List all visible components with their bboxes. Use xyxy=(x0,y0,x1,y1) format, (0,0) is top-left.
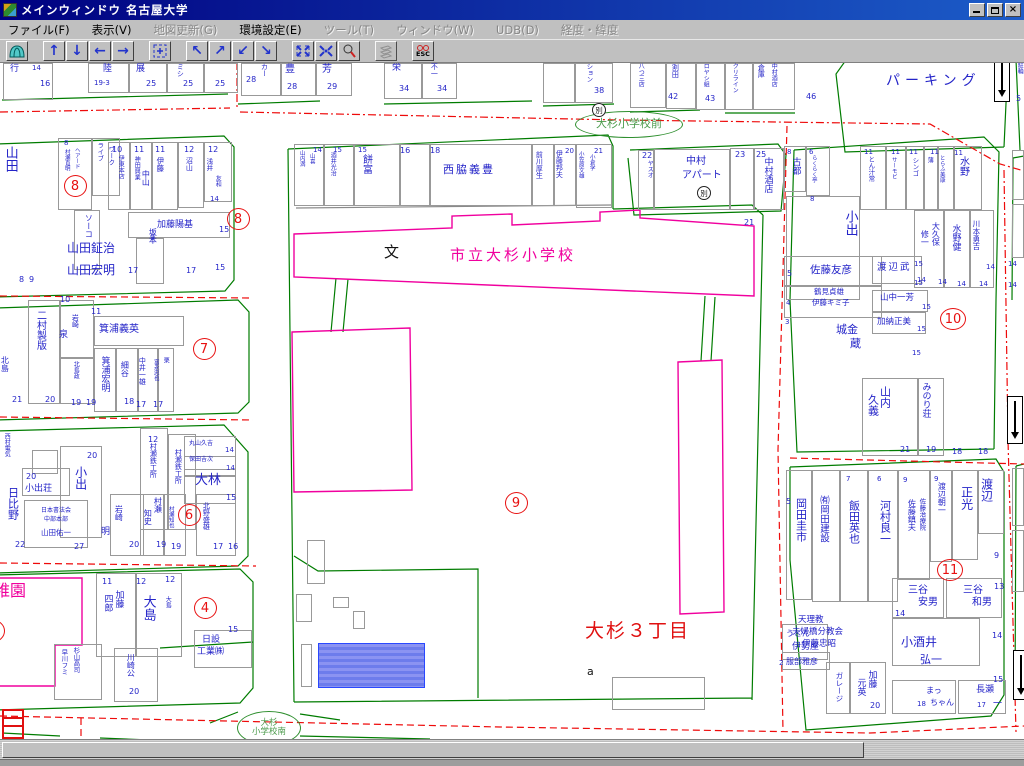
map-label: 元英 xyxy=(855,678,864,696)
layers-icon xyxy=(378,43,394,59)
map-label: 43 xyxy=(705,95,715,103)
map-label: 14 xyxy=(1008,261,1017,268)
map-label: 9 xyxy=(903,477,907,484)
map-label: 14 xyxy=(225,447,234,454)
map-label: 加藤 xyxy=(113,590,122,608)
map-label: 蔵 xyxy=(850,338,861,350)
map-label: 14 xyxy=(895,610,905,618)
map-label: 友和 xyxy=(214,175,220,187)
expand-arrows-icon xyxy=(294,43,312,59)
toolbar-button-pan-up[interactable]: ↑ xyxy=(43,41,65,61)
map-label: 19 xyxy=(71,399,81,407)
map-label: a xyxy=(587,666,594,678)
map-label: 鶴見貞雄 xyxy=(814,288,844,296)
toolbar-button-overview[interactable] xyxy=(6,41,28,61)
map-label: 栗 xyxy=(162,357,168,363)
map-label: 伊勢屋 xyxy=(792,643,819,652)
map-label: 北島 xyxy=(0,356,8,372)
map-label: 11 xyxy=(155,146,165,154)
block-number-circle: 10 xyxy=(940,308,966,330)
map-label: 25 xyxy=(183,80,193,88)
parcel-box xyxy=(333,597,349,608)
toolbar-button-pan-sw[interactable]: ↙ xyxy=(232,41,254,61)
map-label: アパート xyxy=(682,171,722,182)
map-label: 伊東本店 xyxy=(117,155,123,179)
map-label: 17 xyxy=(977,702,986,709)
parcel-box xyxy=(129,63,167,93)
map-label: 18 xyxy=(978,448,988,456)
map-label: 14 xyxy=(210,196,219,203)
map-label: ソーコ xyxy=(84,214,92,238)
parcel-box xyxy=(575,63,613,103)
right-arrow-icon: → xyxy=(117,44,129,58)
map-label: 渡辺武 xyxy=(877,263,912,273)
map-label: ヘアード xyxy=(73,147,79,169)
map-label: 11 xyxy=(891,149,900,156)
map-label: 9 xyxy=(994,552,999,560)
map-label: 芳 xyxy=(322,65,332,76)
map-label: 20 xyxy=(26,473,36,481)
map-label: 20 xyxy=(129,541,139,549)
horizontal-scrollbar[interactable] xyxy=(0,739,1024,759)
map-label: 38 xyxy=(594,87,604,95)
map-label: 21 xyxy=(594,148,603,155)
map-label: 18 xyxy=(124,398,134,406)
toolbar-button-esc[interactable]: ESC xyxy=(412,41,434,61)
map-label: クリライン xyxy=(731,63,737,93)
map-label: シンゴ xyxy=(911,157,918,177)
map-label: 薄 xyxy=(926,157,932,163)
map-label: 15 xyxy=(219,226,229,234)
map-label: 城金 xyxy=(836,324,858,336)
map-label: ミシ xyxy=(176,63,183,77)
map-label: 山田 xyxy=(3,146,17,172)
map-label: 中部本部 xyxy=(44,517,68,523)
toolbar-button-pan-down[interactable]: ↓ xyxy=(66,41,88,61)
map-canvas[interactable]: 行1416陸19-3展25ミシ2525カー28豊28芳29栄34不一34ション3… xyxy=(0,63,1024,739)
overview-icon xyxy=(8,43,26,59)
map-label: 小出 xyxy=(843,210,857,236)
map-label: サーモビ xyxy=(890,157,896,179)
map-label: 17 xyxy=(136,401,146,409)
menu-item-window: ウィンドウ(W) xyxy=(396,22,474,38)
map-label: 34 xyxy=(399,85,409,93)
map-label: 20 xyxy=(565,148,574,155)
map-label: 市立大杉小学校 xyxy=(450,248,576,264)
parcel-box xyxy=(296,594,312,622)
map-label: 北野盛雄 xyxy=(202,502,209,530)
map-label: 割田 xyxy=(671,64,678,78)
sw-arrow-icon: ↙ xyxy=(237,44,249,58)
map-label: 10 xyxy=(60,296,70,304)
menu-bar: ファイル(F)表示(V)地図更新(G)環境設定(E)ツール(T)ウィンドウ(W)… xyxy=(0,20,1024,40)
map-label: 村瀬 xyxy=(153,497,161,513)
map-label: 13 xyxy=(994,583,1004,591)
block-number-circle: 8 xyxy=(64,175,87,197)
map-label: みのり荘 xyxy=(920,382,929,418)
map-label: 12 xyxy=(208,146,218,154)
toolbar-button-pan-se[interactable]: ↘ xyxy=(255,41,277,61)
map-label: 明 xyxy=(101,528,110,537)
map-label: 小笠原文雄 xyxy=(577,151,583,179)
toolbar-button-zoom-in-wide[interactable] xyxy=(315,41,337,61)
map-label: 和男 xyxy=(972,598,992,609)
map-label: 山田鉦治 xyxy=(67,242,115,255)
map-label: 服部雅彦 xyxy=(786,658,818,666)
map-label: パーキング xyxy=(886,74,981,89)
scrollbar-thumb[interactable] xyxy=(2,742,864,758)
parcel-box xyxy=(167,63,204,93)
map-label: 栄 xyxy=(392,64,401,73)
map-label: 日設 xyxy=(202,636,220,645)
map-label: 展 xyxy=(136,65,145,74)
map-label: 20 xyxy=(87,452,97,460)
map-label: 10 xyxy=(112,146,122,154)
map-label: 細谷 xyxy=(120,361,128,377)
map-label: 川崎公 xyxy=(126,653,134,677)
map-label: 佐藤治療院 xyxy=(918,498,925,531)
map-label: 12 xyxy=(165,576,175,584)
map-label: 大島 xyxy=(141,595,155,621)
map-label: 渡辺朝一 xyxy=(937,482,945,514)
map-label: 14 xyxy=(32,65,41,72)
menu-item-udb: UDB(D) xyxy=(496,23,539,37)
map-label: 29 xyxy=(327,83,337,91)
block-number-circle: 6 xyxy=(178,504,201,526)
school-pool xyxy=(318,643,425,688)
parcel-box xyxy=(32,450,58,474)
map-label: ション xyxy=(585,63,592,83)
map-label: 保田吉次 xyxy=(189,457,213,463)
oneway-arrow-icon xyxy=(994,63,1010,102)
map-label: 2 xyxy=(779,660,783,667)
map-label: 沼山 xyxy=(185,157,192,171)
parcel-box xyxy=(353,611,365,629)
map-label: 14 xyxy=(992,632,1002,640)
close-button[interactable]: × xyxy=(1005,3,1021,17)
block-number-circle: 11 xyxy=(937,559,963,581)
map-label: 19-3 xyxy=(94,80,110,87)
map-label: 浅井 xyxy=(205,158,212,171)
map-label: 27 xyxy=(74,543,84,551)
main-window: メインウィンドウ 名古屋大学 × ファイル(F)表示(V)地図更新(G)環境設定… xyxy=(0,0,1024,766)
parcel-box xyxy=(630,63,666,108)
map-label: 18 xyxy=(952,448,962,456)
map-label: 16 xyxy=(400,147,410,155)
map-label: らくらく亭 xyxy=(810,155,816,183)
esc-icon: ESC xyxy=(416,44,430,58)
map-label: 富永忠也 xyxy=(152,359,158,381)
map-label: 小倉学 xyxy=(588,154,594,171)
map-label: 中山 xyxy=(141,170,149,186)
menu-item-map-update: 地図更新(G) xyxy=(153,22,217,38)
map-label: 小出荘 xyxy=(25,485,52,494)
map-label: 豊 xyxy=(285,65,295,76)
map-label: 山田佑一 xyxy=(41,529,71,537)
map-label: 8 xyxy=(64,140,68,147)
map-label: 古都 xyxy=(790,157,799,175)
menu-item-env-settings[interactable]: 環境設定(E) xyxy=(239,22,301,38)
app-icon xyxy=(3,3,17,17)
map-label: 19 xyxy=(171,543,181,551)
map-label: 稚園 xyxy=(0,583,26,600)
map-label: 15 xyxy=(993,676,1003,684)
rail-crossing-symbol xyxy=(2,709,24,739)
map-label: ガレージ xyxy=(835,672,843,702)
map-label: 大林 xyxy=(195,474,221,488)
map-label: 岩崎 xyxy=(71,314,78,328)
menu-item-tools: ツール(T) xyxy=(324,22,375,38)
map-label: 14 xyxy=(938,279,947,286)
minimize-button[interactable] xyxy=(969,3,985,17)
map-label: 伊藤邦夫 xyxy=(555,150,562,178)
map-label: 15 xyxy=(215,264,225,272)
title-bar[interactable]: メインウィンドウ 名古屋大学 × xyxy=(0,0,1024,20)
map-label: 17 xyxy=(213,543,223,551)
map-label: 川本勇吉 xyxy=(972,220,980,250)
map-label: 長瀬 xyxy=(976,686,994,695)
map-label: 小出 xyxy=(74,466,87,490)
map-label: 中井一雄 xyxy=(138,357,145,385)
menu-item-lon-lat: 経度・緯度 xyxy=(561,22,619,38)
map-label: 大杉３丁目 xyxy=(585,622,690,642)
map-label: 21 xyxy=(900,446,910,454)
map-label: 酒井光治 xyxy=(329,152,335,176)
annotation-badge: 別 xyxy=(697,186,711,200)
map-label: 15 xyxy=(917,326,926,333)
map-label: 19 xyxy=(156,541,166,549)
map-label: 加藤 xyxy=(866,670,875,688)
map-label: 西脇義豊 xyxy=(443,164,495,176)
map-label: 天理教 xyxy=(798,616,824,625)
map-label: 中村酒店 xyxy=(770,63,776,87)
bus-stop-label: 大杉小学校前 xyxy=(575,111,683,138)
parcel-box xyxy=(1012,204,1024,258)
map-label: 20 xyxy=(129,688,139,696)
parcel-box xyxy=(952,470,978,560)
map-label: 三谷 xyxy=(908,586,928,597)
map-label: 知史 xyxy=(143,509,151,525)
map-label: 三谷 xyxy=(963,586,983,597)
parcel-box xyxy=(1012,468,1024,526)
parcel-box xyxy=(543,63,575,103)
map-label: 7 xyxy=(846,476,850,483)
map-label: 15 xyxy=(914,280,923,287)
map-label: まっ xyxy=(926,687,942,695)
map-label: 9 xyxy=(29,276,34,284)
map-label: 15 xyxy=(922,304,931,311)
map-label: 杉山高司 xyxy=(72,647,79,673)
map-label: 大島 xyxy=(164,596,170,608)
map-label: 14 xyxy=(979,281,988,288)
map-label: 安男 xyxy=(918,598,938,609)
map-label: 4 xyxy=(786,300,790,307)
map-label: 箕浦宏明 xyxy=(99,356,108,392)
map-label: 6 xyxy=(877,476,881,483)
map-label: 二村製版 xyxy=(34,310,45,350)
map-label: 15 xyxy=(912,350,921,357)
up-arrow-icon: ↑ xyxy=(48,44,60,58)
map-label: 5 xyxy=(787,270,792,278)
toolbar-button-magnifier[interactable] xyxy=(338,41,360,61)
map-label: 餅富 xyxy=(360,154,371,174)
map-label: 5 xyxy=(1016,95,1021,103)
map-label: ヤスオ xyxy=(646,160,652,178)
map-label: 20 xyxy=(45,396,55,404)
map-label: 駐輪 xyxy=(1016,63,1022,74)
map-label: 11 xyxy=(91,308,101,316)
nw-arrow-icon: ↖ xyxy=(191,44,203,58)
map-label: 水野健 xyxy=(950,224,959,251)
shrink-arrows-icon xyxy=(317,43,335,59)
map-label: 飯田英也 xyxy=(848,500,860,544)
map-label: 坂本 xyxy=(148,228,156,244)
map-label: 河村良一 xyxy=(879,500,891,544)
map-label: 25 xyxy=(146,80,156,88)
map-label: 久義 xyxy=(867,394,879,416)
left-arrow-icon: ← xyxy=(94,44,106,58)
map-label: 17 xyxy=(186,267,196,275)
map-label: 行 xyxy=(10,65,19,74)
magnifier-icon xyxy=(341,43,357,59)
map-label: 19 xyxy=(86,399,96,407)
map-label: 14 xyxy=(1008,282,1017,289)
map-label: 21 xyxy=(744,219,754,227)
bus-stop-label: 大杉小学校南 xyxy=(237,711,301,739)
parcel-box xyxy=(307,540,325,584)
map-label: 28 xyxy=(287,83,297,91)
toolbar-button-center[interactable] xyxy=(149,41,171,61)
map-label: 16 xyxy=(228,543,238,551)
menu-item-view[interactable]: 表示(V) xyxy=(92,22,132,38)
map-label: 村瀬鉄工所 xyxy=(149,443,156,478)
map-label: 箕浦義英 xyxy=(99,325,139,336)
map-label: 中村酒店 xyxy=(762,157,771,193)
parcel-box xyxy=(725,63,753,110)
map-label: ロヤシ組 xyxy=(702,63,708,87)
map-label: 14 xyxy=(957,281,966,288)
parcel-box xyxy=(892,680,956,714)
map-label: 村瀬知也 xyxy=(167,506,173,528)
toolbar-button-layers xyxy=(375,41,397,61)
map-label: 山内 xyxy=(879,386,891,408)
map-label: 岩崎 xyxy=(114,505,122,521)
restore-button[interactable] xyxy=(987,3,1003,17)
map-label: 加藤陽基 xyxy=(157,221,193,230)
map-label: 前川厚生 xyxy=(535,151,542,179)
parcel-box xyxy=(1012,150,1024,200)
map-label: 四郎 xyxy=(102,594,111,612)
map-label: 23 xyxy=(735,151,745,159)
menu-item-file[interactable]: ファイル(F) xyxy=(8,22,70,38)
map-label: 11 xyxy=(102,578,112,586)
map-label: 18 xyxy=(430,147,440,155)
map-label: 34 xyxy=(437,85,447,93)
map-label: 八つ三店 xyxy=(637,63,643,87)
map-label: 山中一芳 xyxy=(880,294,914,303)
parcel-box xyxy=(384,63,422,99)
map-label: 15 xyxy=(228,626,238,634)
map-label: 28 xyxy=(246,76,256,84)
map-label: 水野 xyxy=(957,156,968,176)
map-label: 8 xyxy=(810,196,814,203)
window-bottom-edge xyxy=(0,759,1024,766)
map-label: 18 xyxy=(917,701,926,708)
map-label: 佐藤鎮夫 xyxy=(907,499,915,531)
map-label: 15 xyxy=(914,261,923,268)
oneway-arrow-icon xyxy=(1013,650,1024,700)
center-icon xyxy=(152,43,168,59)
map-label: 17 xyxy=(153,401,163,409)
block-number-circle: 4 xyxy=(194,597,217,619)
map-label: 伊藤キミ子 xyxy=(812,299,850,307)
map-label: 46 xyxy=(806,93,816,101)
map-label: 泉 xyxy=(59,331,68,340)
map-label: 3 xyxy=(785,319,789,326)
map-label: 17 xyxy=(128,267,138,275)
map-label: 22 xyxy=(15,541,25,549)
map-label: 14 xyxy=(313,147,322,154)
map-label: 15 xyxy=(358,147,367,154)
map-label: 村瀬直明 xyxy=(63,149,69,171)
toolbar-button-pan-ne[interactable]: ↗ xyxy=(209,41,231,61)
se-arrow-icon: ↘ xyxy=(260,44,272,58)
map-label: 21 xyxy=(12,396,22,404)
toolbar-button-zoom-out-wide[interactable] xyxy=(292,41,314,61)
down-arrow-icon: ↓ xyxy=(71,44,83,58)
map-label: 正光 xyxy=(960,486,973,510)
map-label: 19 xyxy=(926,446,936,454)
map-label: 日本書法会 xyxy=(41,508,71,514)
map-label: ちゃん xyxy=(930,699,954,707)
map-label: ㈲岡田建設 xyxy=(818,495,828,543)
map-label: 北島政 xyxy=(72,361,78,379)
map-label: 西村電気 xyxy=(3,433,9,457)
toolbar-button-pan-right[interactable]: → xyxy=(112,41,134,61)
map-label: 5 xyxy=(786,498,791,506)
map-label: 不一 xyxy=(430,63,437,77)
map-label: 15 xyxy=(333,147,342,154)
annotation-badge: 別 xyxy=(592,103,606,117)
map-label: 文 xyxy=(384,245,399,261)
map-label: 8 xyxy=(19,276,24,284)
map-label: 15 xyxy=(226,494,236,502)
map-label: 14 xyxy=(986,264,995,271)
toolbar-button-pan-nw[interactable]: ↖ xyxy=(186,41,208,61)
map-label: 16 xyxy=(40,80,50,88)
parcel-box xyxy=(60,300,94,358)
ne-arrow-icon: ↗ xyxy=(214,44,226,58)
block-number-circle: 9 xyxy=(505,492,528,514)
toolbar-button-pan-left[interactable]: ← xyxy=(89,41,111,61)
map-label: 早川フミ xyxy=(60,649,67,675)
map-label: 山内満 xyxy=(298,150,304,167)
map-label: 小酒井 xyxy=(901,636,937,649)
map-label: 14 xyxy=(226,465,235,472)
map-label: 11 xyxy=(134,146,144,154)
map-label: ライブ xyxy=(96,142,103,162)
map-label: 山田宏明 xyxy=(67,264,115,277)
map-label: 佐藤友彦 xyxy=(810,265,852,276)
toolbar: ↑↓←→↖↗↙↘ESC xyxy=(0,40,1024,63)
map-label: とん汁常 xyxy=(867,156,874,182)
map-label: うどん xyxy=(786,630,810,638)
map-label: カー xyxy=(260,63,267,77)
map-label: 42 xyxy=(668,93,678,101)
map-label: 修一 xyxy=(920,230,928,246)
map-label: 工業㈱ xyxy=(197,648,224,657)
map-label: 一 xyxy=(993,700,1002,709)
